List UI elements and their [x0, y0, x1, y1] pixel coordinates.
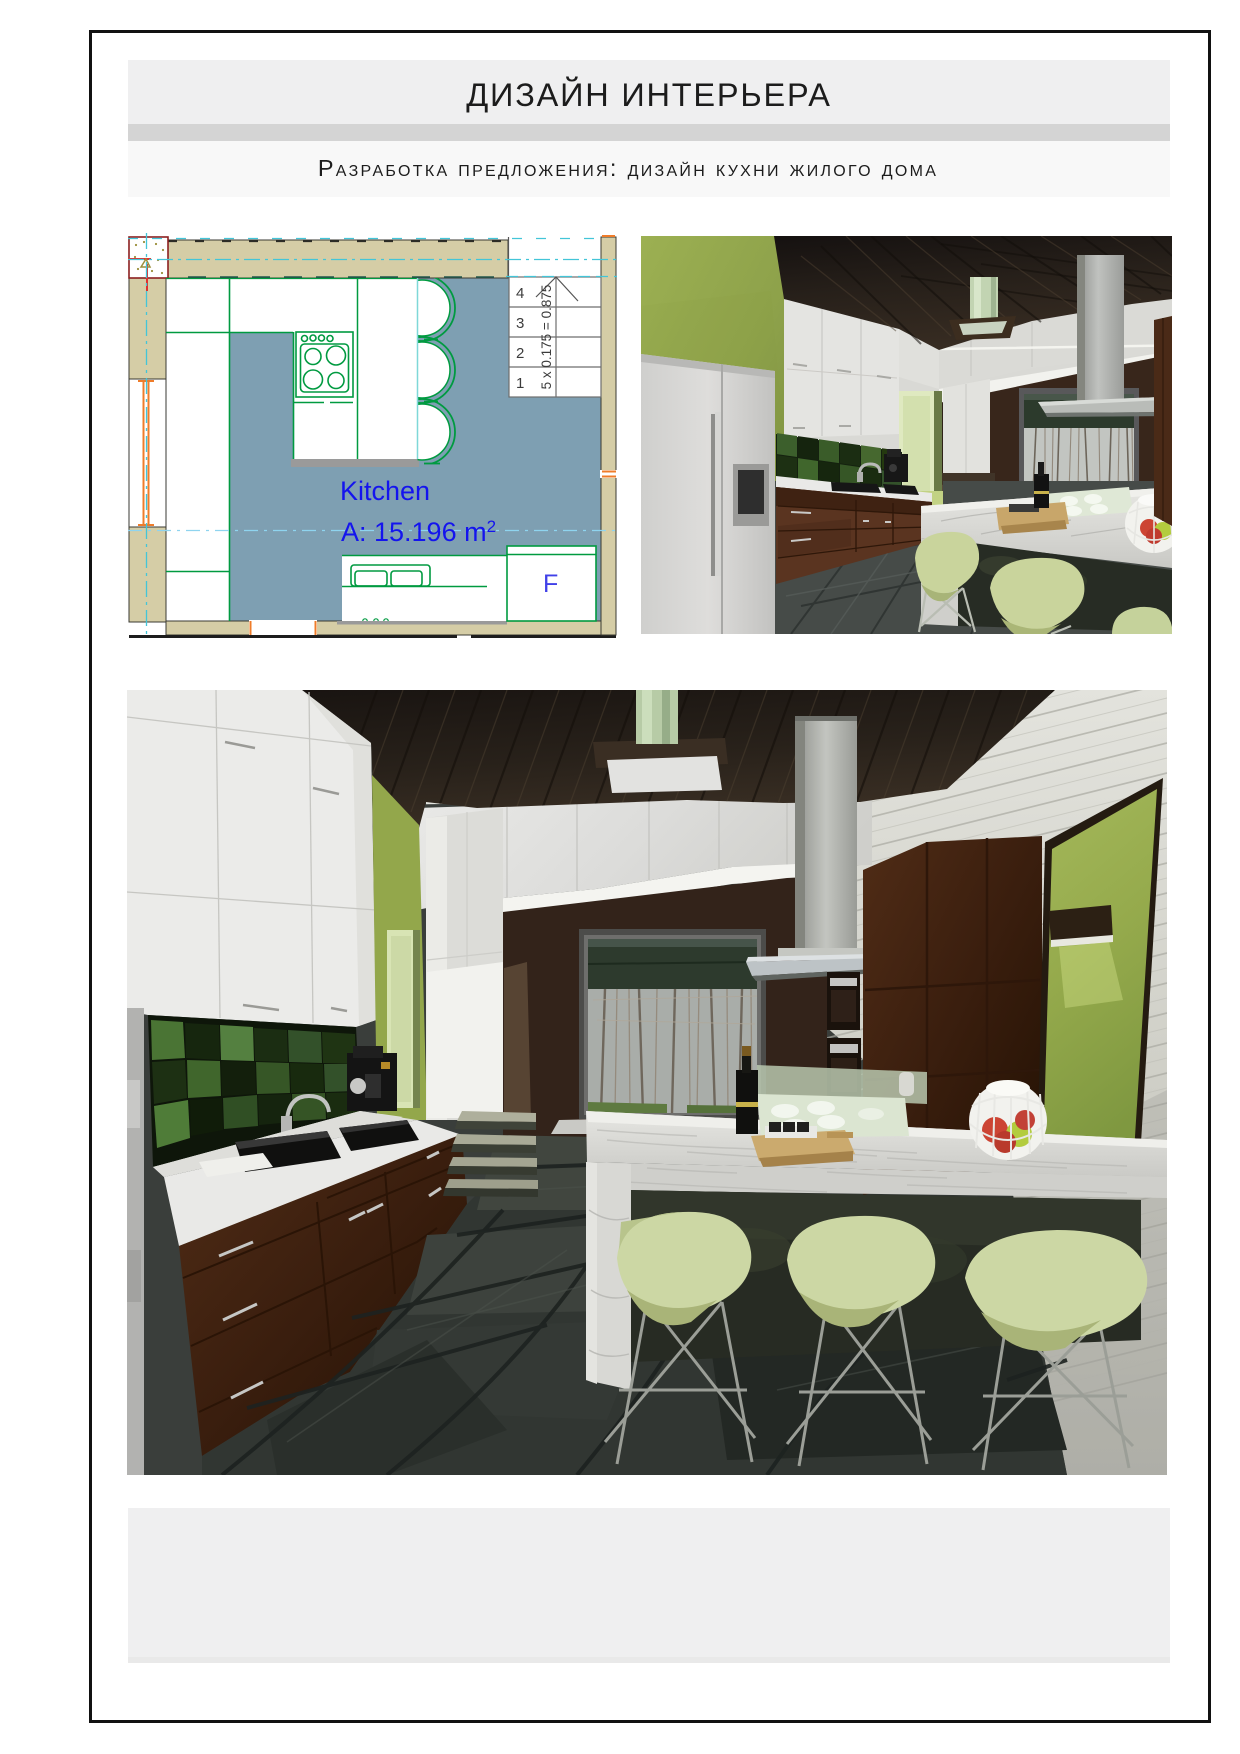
svg-text:3: 3 — [516, 315, 524, 332]
svg-text:A: 15.196 m2: A: 15.196 m2 — [341, 517, 496, 547]
svg-text:2: 2 — [516, 345, 524, 362]
svg-text:4: 4 — [516, 285, 524, 302]
svg-text:F: F — [543, 570, 558, 598]
svg-text:5 x 0.175 = 0.875: 5 x 0.175 = 0.875 — [539, 285, 554, 390]
svg-text:1: 1 — [516, 375, 524, 392]
svg-text:Kitchen: Kitchen — [340, 476, 430, 506]
